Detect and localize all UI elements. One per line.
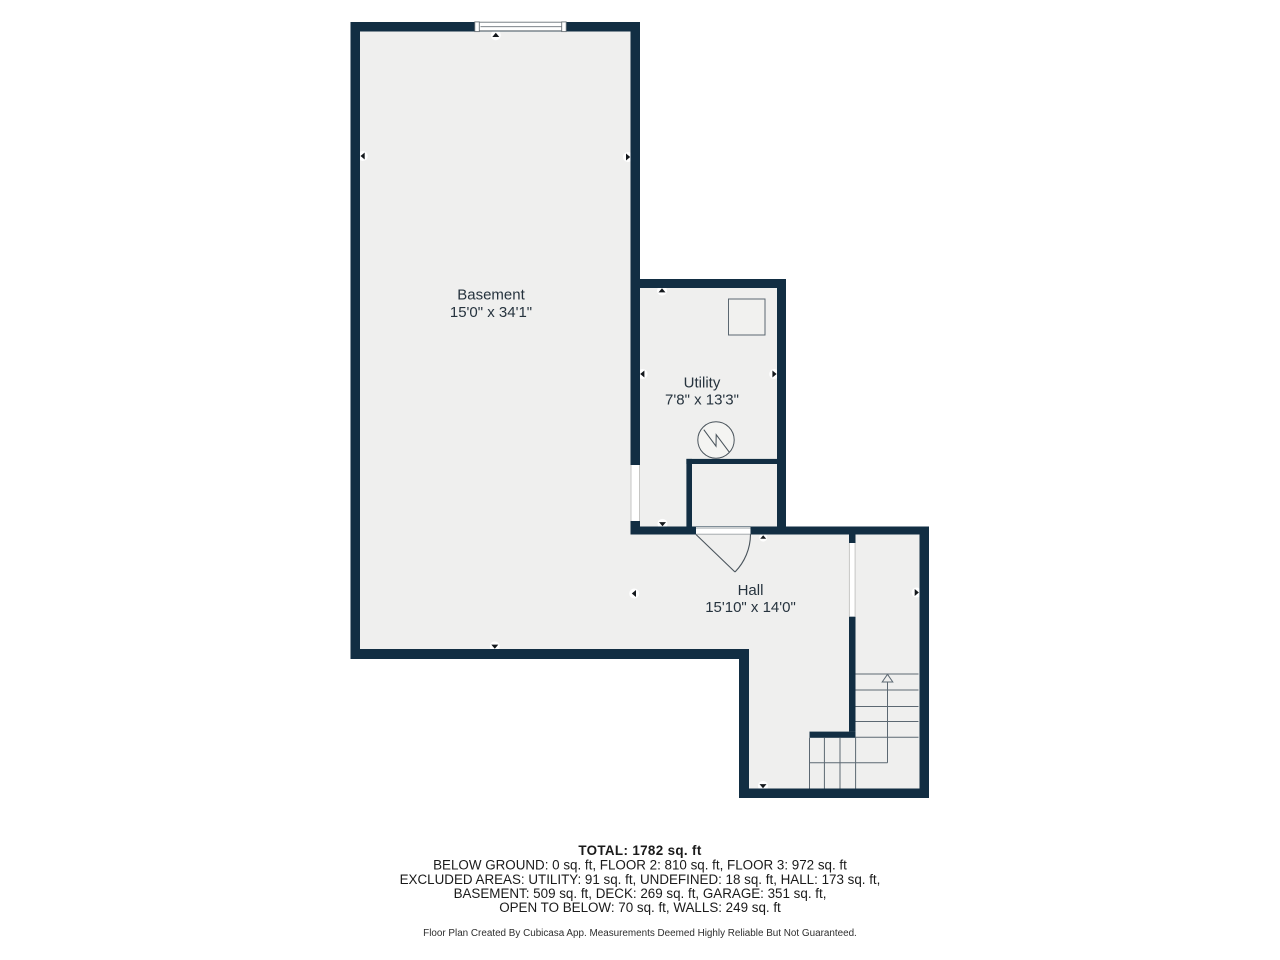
svg-text:TOTAL: 1782 sq. ft: TOTAL: 1782 sq. ft: [578, 843, 702, 858]
svg-text:OPEN TO BELOW: 70 sq. ft, WALL: OPEN TO BELOW: 70 sq. ft, WALLS: 249 sq.…: [499, 900, 781, 915]
svg-text:Hall: Hall: [738, 582, 764, 599]
svg-text:EXCLUDED AREAS: UTILITY: 91 sq: EXCLUDED AREAS: UTILITY: 91 sq. ft, UNDE…: [400, 872, 881, 887]
svg-text:Floor Plan Created By Cubicasa: Floor Plan Created By Cubicasa App. Meas…: [423, 928, 857, 939]
svg-text:7'8" x 13'3": 7'8" x 13'3": [665, 392, 739, 409]
svg-text:Utility: Utility: [684, 375, 721, 392]
svg-text:15'10" x 14'0": 15'10" x 14'0": [705, 599, 796, 616]
svg-text:15'0" x 34'1": 15'0" x 34'1": [450, 304, 532, 321]
svg-text:Basement: Basement: [457, 287, 525, 304]
svg-text:BASEMENT: 509 sq. ft, DECK: 26: BASEMENT: 509 sq. ft, DECK: 269 sq. ft, …: [454, 886, 827, 901]
svg-text:BELOW GROUND: 0 sq. ft, FLOOR: BELOW GROUND: 0 sq. ft, FLOOR 2: 810 sq.…: [433, 858, 847, 873]
